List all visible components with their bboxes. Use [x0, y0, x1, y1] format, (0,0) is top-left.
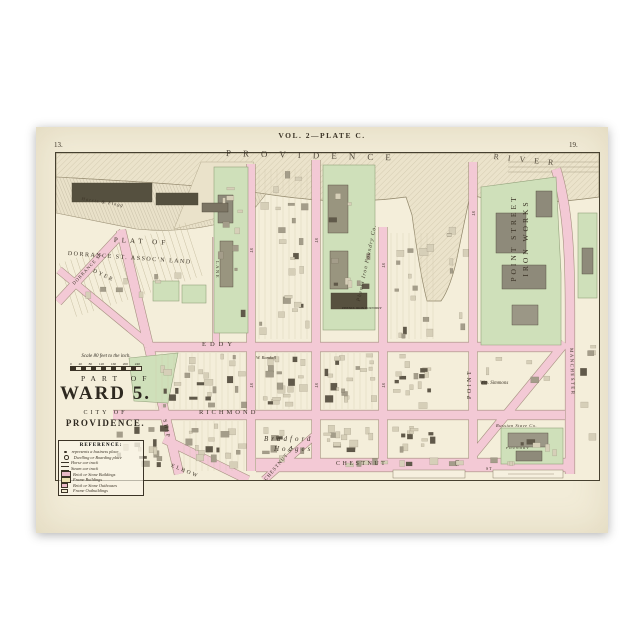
map-frame: PROVIDENCE RIVER Harris & Flagg PLAT OF …	[55, 152, 600, 481]
street-label-st-2: ST	[314, 238, 318, 243]
scale-text: Scale 80 feet to the inch.	[56, 354, 156, 359]
stave-co-label: Russian Stave Co.	[496, 424, 537, 429]
poster-photo-background: VOL. 2—PLATE C. 13. 19.	[0, 0, 644, 644]
legend-swatch-line2	[61, 466, 69, 470]
hodges-label-line1: Bradford	[264, 436, 313, 443]
street-label-eddy: EDDY	[202, 342, 236, 349]
legend-swatch-line	[61, 462, 69, 463]
street-label-st-1: ST	[249, 248, 253, 253]
reference-legend: REFERENCE: represents a business place D…	[58, 440, 144, 496]
simmons-label: Wm. Simmons	[480, 381, 508, 386]
legend-swatch-dot2	[64, 455, 69, 460]
street-label-richmond: RICHMOND	[199, 410, 258, 417]
street-label-st-8: ST	[486, 467, 493, 471]
scale-bar	[70, 366, 142, 371]
phenix-caps-label: PHENIX IRON FOUNDRY	[342, 307, 382, 311]
page-number-right: 19.	[569, 141, 578, 149]
legend-swatch-dot	[64, 451, 67, 454]
street-label-chestnut: CHESTNUT	[336, 461, 387, 467]
page-number-left: 13.	[54, 141, 63, 149]
street-label-lane: LANE	[215, 261, 220, 279]
hodges-label-line2: Hodges	[274, 446, 313, 453]
legend-row: Frame Outbuildings	[61, 488, 141, 494]
street-label-st-4: ST	[249, 383, 253, 388]
randall-label: W. Randall	[256, 356, 276, 361]
title-providence: PROVIDENCE.	[58, 418, 153, 428]
street-label-manchester: MANCHESTER	[567, 348, 573, 396]
legend-header: REFERENCE:	[61, 443, 141, 448]
legend-swatch-brickout	[61, 483, 68, 488]
iron-works-line1: POINT STREET	[508, 173, 520, 303]
plate-title: VOL. 2—PLATE C.	[36, 131, 608, 140]
map-poster: VOL. 2—PLATE C. 13. 19.	[36, 127, 608, 533]
street-label-st-7: ST	[471, 211, 475, 216]
street-label-st-3: ST	[381, 263, 385, 268]
street-label-point: POINT	[467, 369, 473, 399]
street-label-st-5: ST	[314, 383, 318, 388]
point-street-iron-works-label: POINT STREET IRON WORKS	[508, 173, 532, 303]
legend-swatch-frameout	[61, 489, 68, 494]
title-ward: WARD 5.	[58, 383, 153, 405]
street-label-st-6: ST	[381, 383, 385, 388]
title-city-of: CITY OF	[58, 410, 153, 416]
iron-works-line2: IRON WORKS	[520, 173, 532, 303]
legend-swatch-frame	[61, 477, 71, 483]
foundry-label: FOUNDRY	[506, 447, 530, 451]
title-part-of: PART OF	[81, 374, 152, 383]
